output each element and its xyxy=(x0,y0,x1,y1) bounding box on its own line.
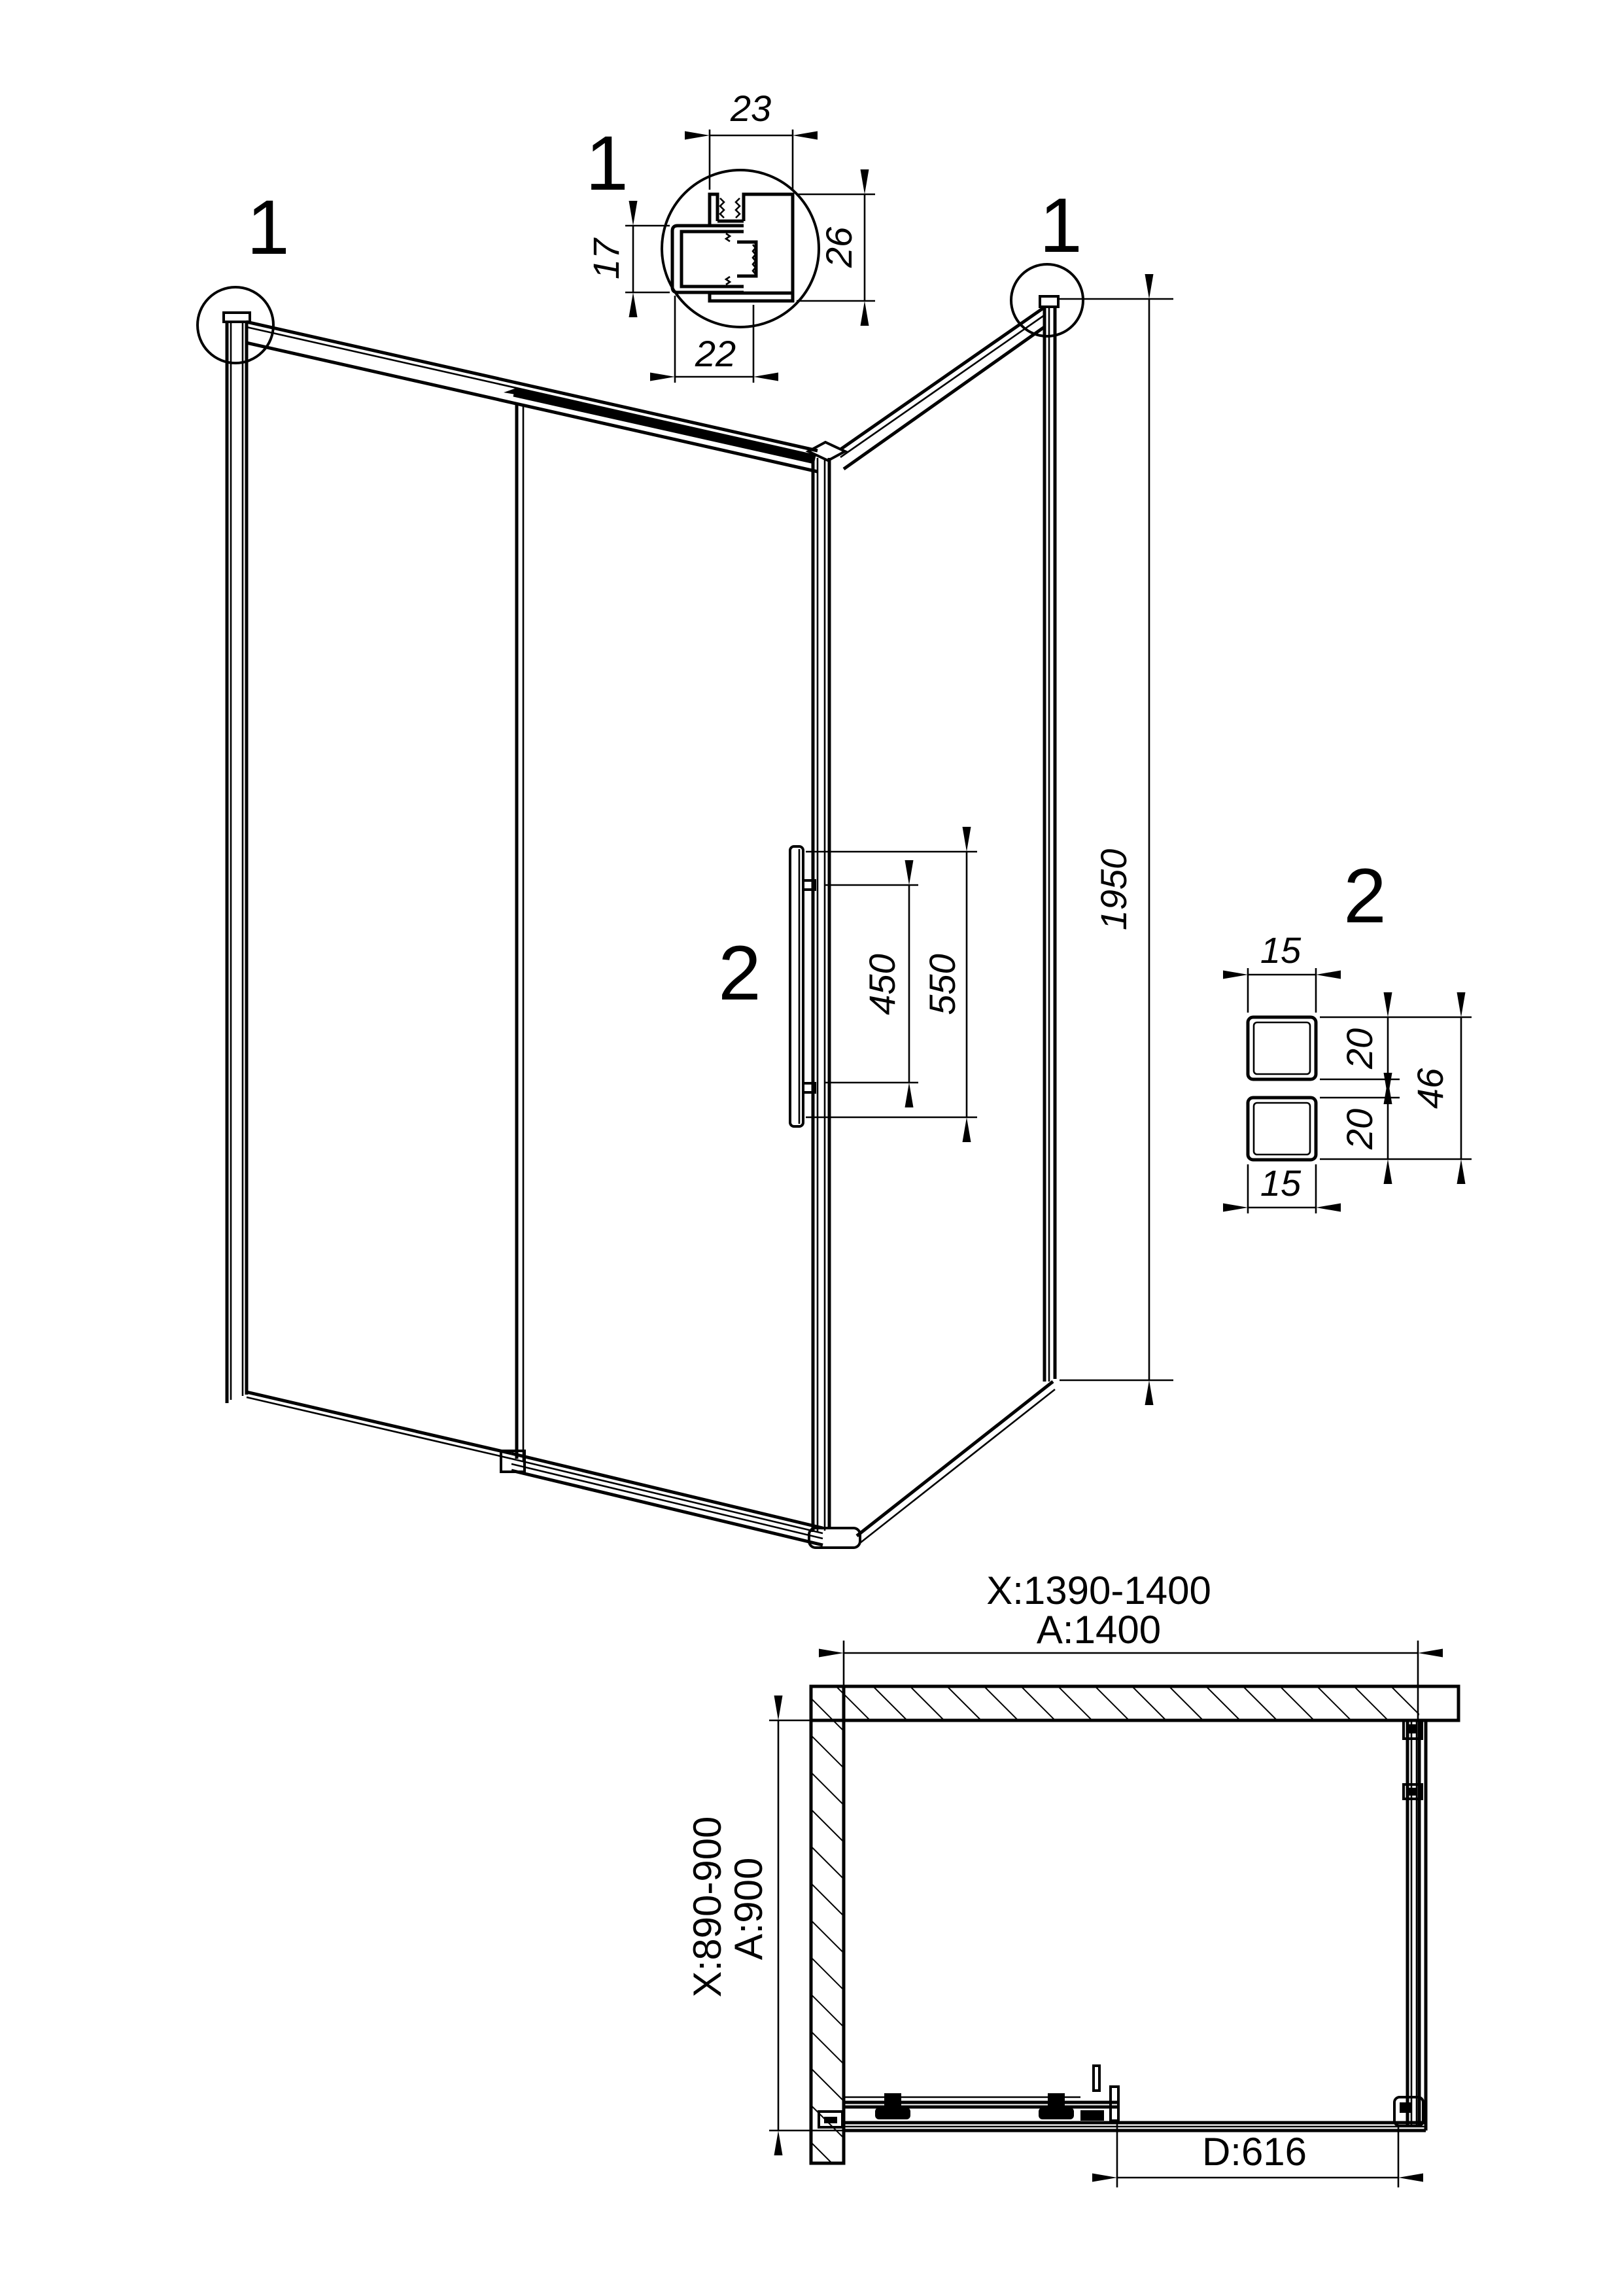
dim-26-text: 26 xyxy=(818,226,859,268)
technical-drawing-sheet: 1 23 xyxy=(0,0,1622,2296)
dim-450-text: 450 xyxy=(861,954,903,1015)
dimension-20-upper: 20 xyxy=(1320,1017,1400,1079)
dimension-20-lower: 20 xyxy=(1320,1098,1400,1159)
dim-depth-text: A:900 xyxy=(727,1858,770,1960)
door-hanger-strip xyxy=(514,392,815,460)
plan-view: X:1390-1400 A:1400 X:890-900 A:900 D:616 xyxy=(685,1569,1458,2187)
detail2-label: 2 xyxy=(1343,853,1387,939)
side-panel-top-rail xyxy=(840,307,1045,469)
wall-top xyxy=(811,1686,1458,1720)
dim-door-text: D:616 xyxy=(1202,2130,1307,2174)
dimension-22: 22 xyxy=(675,296,753,383)
handle-detail-2: 2 15 20 20 xyxy=(1248,853,1472,1213)
plan-bottom-track xyxy=(844,2123,1426,2131)
plan-sliding-door xyxy=(819,2066,1118,2127)
dimension-15-bottom: 15 xyxy=(1248,1162,1316,1213)
dim-17-text: 17 xyxy=(585,237,627,279)
dim-20-upper-text: 20 xyxy=(1339,1028,1380,1070)
side-panel-back-edge xyxy=(1040,296,1058,1382)
dim-46-text: 46 xyxy=(1409,1068,1451,1109)
side-panel-bottom-edge xyxy=(857,1382,1055,1542)
shower-enclosure-drawing: 1 23 xyxy=(0,0,1622,2296)
front-corner-post xyxy=(808,442,860,1548)
dim-width-range-text: X:1390-1400 xyxy=(986,1569,1211,1612)
dim-550-text: 550 xyxy=(922,954,963,1015)
wall-profile-shape xyxy=(672,194,793,301)
left-wall-profile xyxy=(224,313,250,1403)
door-roller-right-top xyxy=(1048,2093,1065,2106)
callout-right-label: 1 xyxy=(1039,183,1082,269)
detail1-label: 1 xyxy=(585,120,629,207)
wall-left xyxy=(811,1686,844,2163)
dim-15-top-text: 15 xyxy=(1260,930,1302,971)
dim-22-text: 22 xyxy=(695,333,736,374)
front-bottom-track xyxy=(247,1392,823,1545)
profile-detail-1: 1 23 xyxy=(585,88,875,383)
dim-depth-range-text: X:890-900 xyxy=(685,1817,729,1998)
door-roller-left xyxy=(875,2108,910,2119)
door-roller-left-top xyxy=(884,2093,901,2106)
dim-1950-text: 1950 xyxy=(1093,849,1134,931)
plan-side-panel xyxy=(1394,1720,1426,2131)
dimension-15-top: 15 xyxy=(1248,930,1316,1013)
handle-section-squares xyxy=(1248,1017,1316,1160)
isometric-view: 1 1 xyxy=(198,183,1173,1548)
door-divider-edge xyxy=(517,404,523,1461)
dimension-door-opening: D:616 xyxy=(1117,2123,1398,2187)
callout-right-circle xyxy=(1011,264,1083,336)
dim-23-text: 23 xyxy=(730,88,771,129)
dim-20-lower-text: 20 xyxy=(1339,1109,1380,1150)
dimension-23: 23 xyxy=(710,88,793,190)
dim-15-bottom-text: 15 xyxy=(1260,1162,1302,1204)
handle-callout-label: 2 xyxy=(718,930,761,1017)
door-handle xyxy=(790,846,815,1126)
door-edge-tab xyxy=(1094,2066,1099,2091)
dimension-450: 450 xyxy=(825,885,918,1083)
callout-left-label: 1 xyxy=(247,184,290,271)
dimension-46: 46 xyxy=(1400,1017,1472,1159)
dimension-1950: 1950 xyxy=(1060,299,1173,1380)
door-roller-right xyxy=(1039,2108,1074,2119)
dim-width-text: A:1400 xyxy=(1037,1608,1161,1652)
dimension-17: 17 xyxy=(585,226,670,292)
